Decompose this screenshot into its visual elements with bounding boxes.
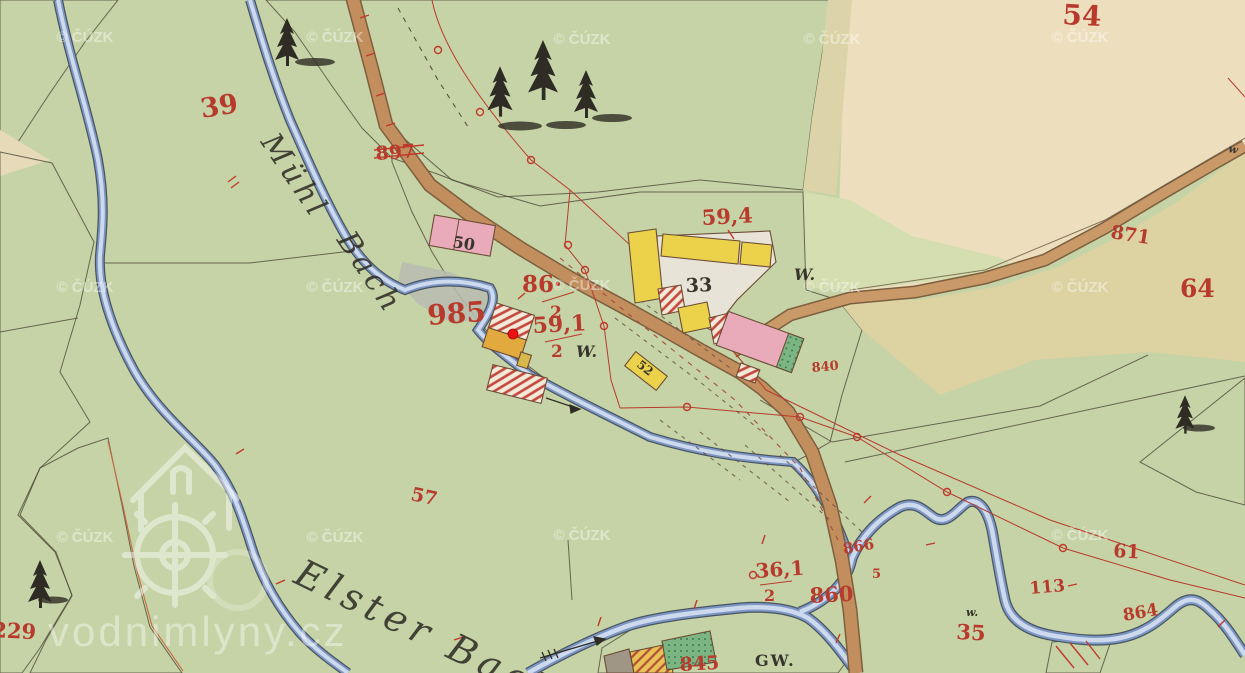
cuzk-watermark: © ČÚZK bbox=[57, 278, 114, 296]
parcel-number-985: 985 bbox=[426, 295, 487, 332]
parcel-number-64: 64 bbox=[1180, 274, 1215, 303]
parcel-number-897: 897 bbox=[375, 140, 416, 165]
site-watermark: vodnimlyny.cz bbox=[48, 608, 348, 655]
parcel-number-229: 229 bbox=[0, 617, 37, 644]
cuzk-watermark: © ČÚZK bbox=[1052, 28, 1109, 46]
letter-w-small: w. bbox=[966, 606, 978, 619]
cuzk-watermark: © ČÚZK bbox=[554, 526, 611, 544]
cuzk-watermark: © ČÚZK bbox=[307, 28, 364, 46]
cuzk-watermark: © ČÚZK bbox=[57, 28, 114, 46]
map-canvas[interactable]: 39 54 897 871 64 59,4 86· 2 985 59,1 2 8… bbox=[0, 0, 1245, 673]
label-gw: GW. bbox=[755, 651, 796, 670]
cuzk-watermark: © ČÚZK bbox=[1052, 278, 1109, 296]
cuzk-watermark: © ČÚZK bbox=[804, 278, 861, 296]
parcel-number-845: 845 bbox=[679, 652, 720, 673]
parcel-number-35: 35 bbox=[956, 619, 987, 645]
historical-cadastral-map[interactable]: 39 54 897 871 64 59,4 86· 2 985 59,1 2 8… bbox=[0, 0, 1245, 673]
parcel-866-denominator: 5 bbox=[872, 567, 881, 582]
cuzk-watermark: © ČÚZK bbox=[307, 528, 364, 546]
cuzk-watermark: © ČÚZK bbox=[307, 278, 364, 296]
parcel-number-840: 840 bbox=[811, 359, 839, 376]
building-number-50: 50 bbox=[451, 232, 476, 254]
parcel-number-39: 39 bbox=[198, 88, 240, 124]
building-number-33: 33 bbox=[685, 274, 712, 297]
parcel-number-59-4: 59,4 bbox=[701, 202, 753, 230]
parcel-59-1-denominator: 2 bbox=[551, 342, 563, 362]
cuzk-watermark: © ČÚZK bbox=[57, 528, 114, 546]
parcel-number-36-1: 36,1 bbox=[755, 556, 805, 583]
parcel-number-61: 61 bbox=[1113, 540, 1141, 563]
parcel-number-860: 860 bbox=[809, 581, 854, 608]
cuzk-watermark: © ČÚZK bbox=[804, 30, 861, 48]
parcel-number-113: 113 bbox=[1029, 576, 1066, 599]
cuzk-watermark: © ČÚZK bbox=[554, 276, 611, 294]
cuzk-watermark: © ČÚZK bbox=[554, 30, 611, 48]
letter-w-upper: W. bbox=[576, 342, 597, 361]
mill-location-marker[interactable] bbox=[508, 329, 518, 339]
parcel-36-denominator: 2 bbox=[764, 586, 775, 605]
cuzk-watermark: © ČÚZK bbox=[1052, 526, 1109, 544]
